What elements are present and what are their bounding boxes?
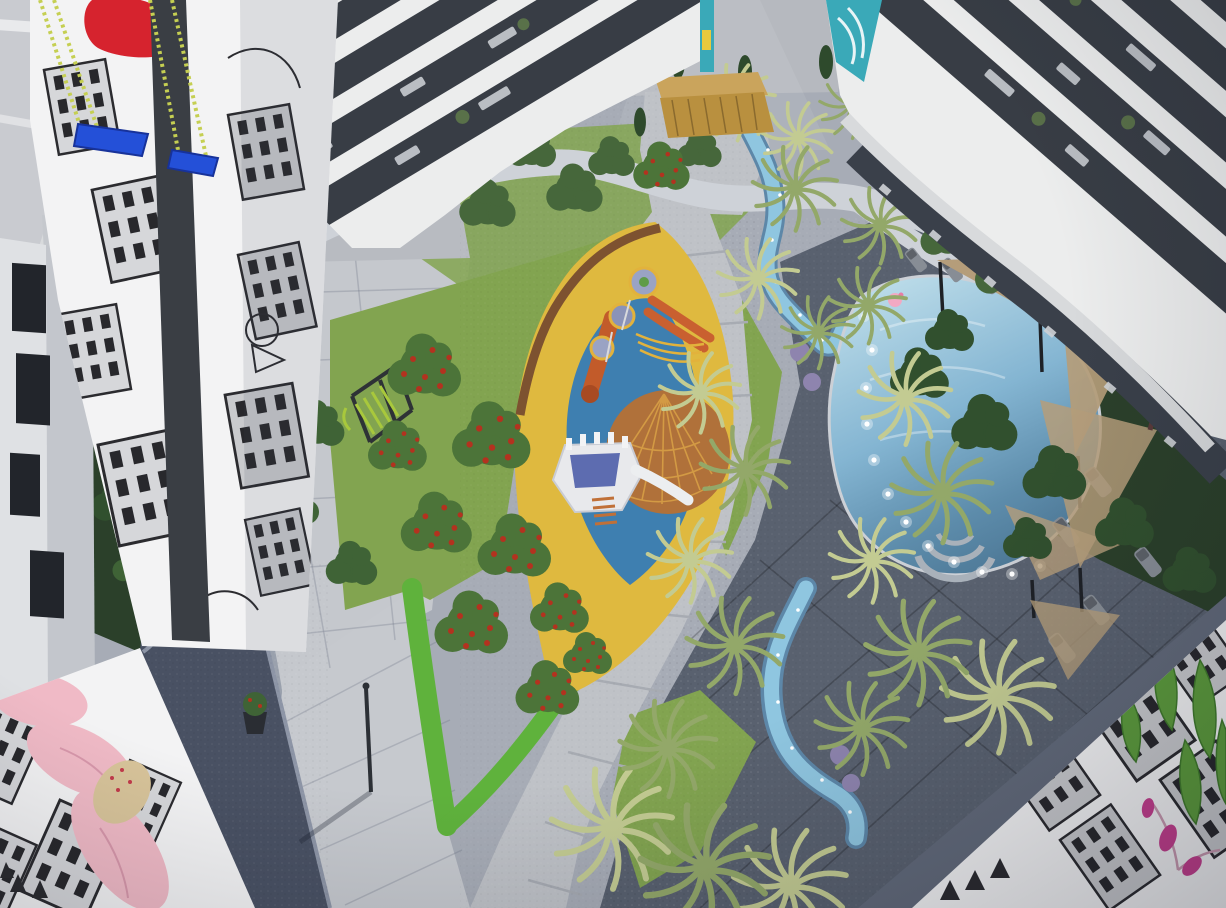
aerial-courtyard-render: [0, 0, 1226, 908]
vignette: [0, 0, 1226, 908]
scene-canvas: [0, 0, 1226, 908]
